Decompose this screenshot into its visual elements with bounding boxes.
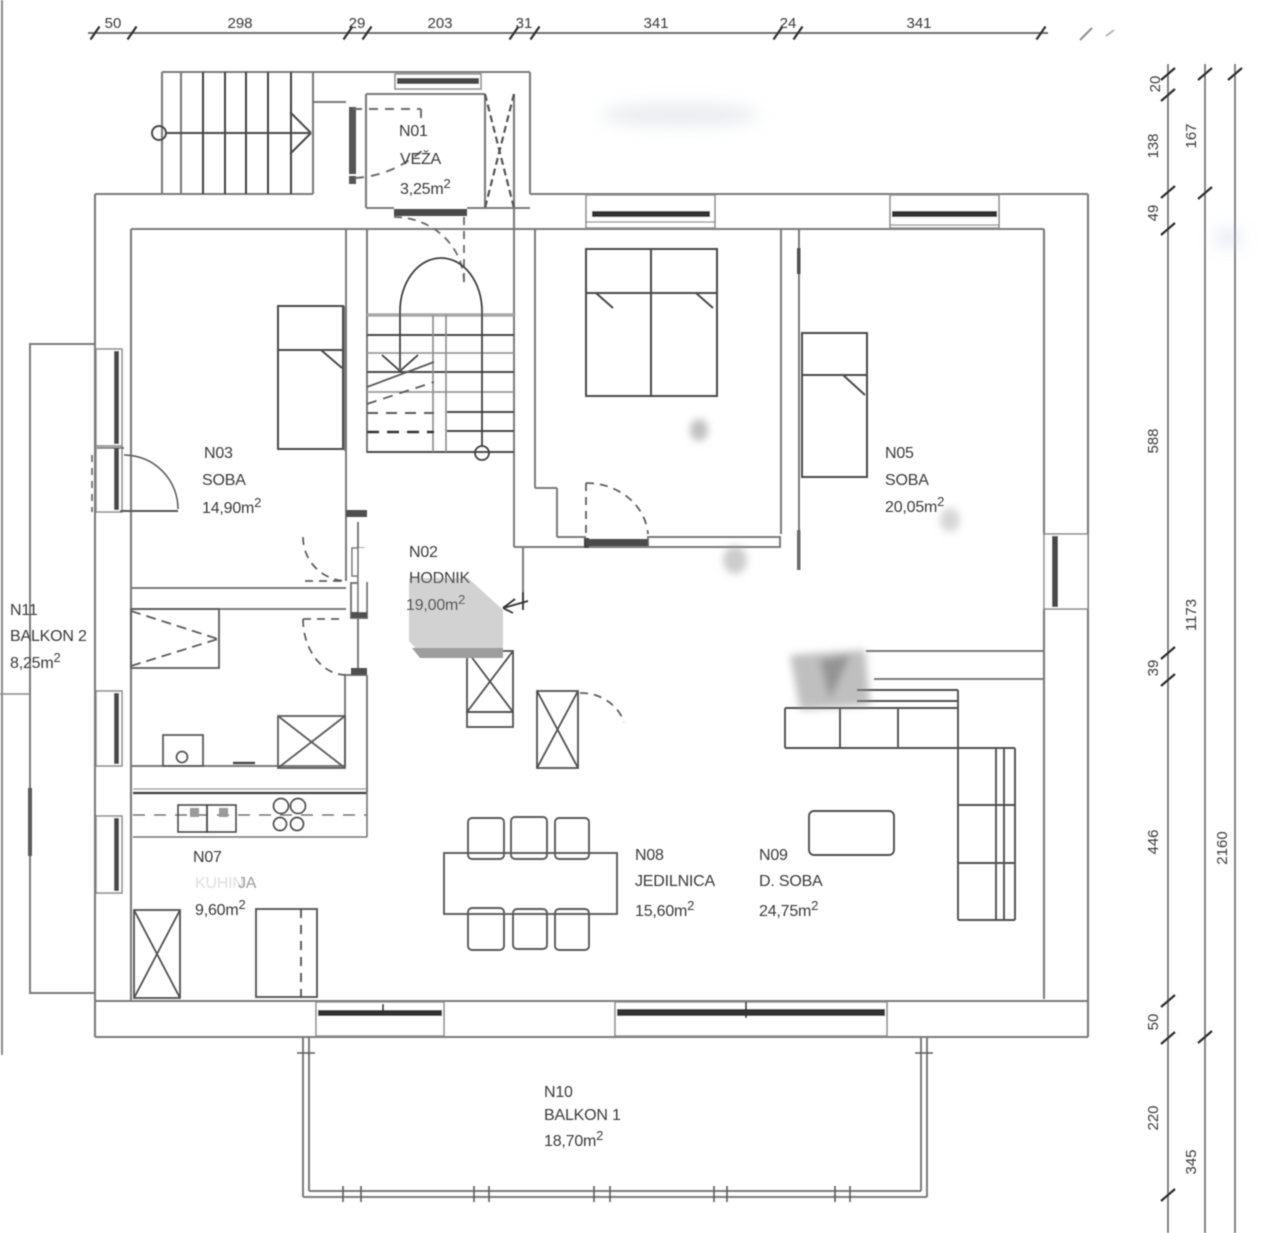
svg-text:14,90m2: 14,90m2 xyxy=(202,495,261,517)
svg-text:29: 29 xyxy=(349,15,366,32)
svg-text:49: 49 xyxy=(1145,205,1162,222)
svg-text:20: 20 xyxy=(1147,76,1164,93)
svg-text:1173: 1173 xyxy=(1183,599,1200,631)
svg-text:N05: N05 xyxy=(885,445,914,462)
svg-text:N11: N11 xyxy=(10,602,38,619)
svg-text:JA: JA xyxy=(238,875,257,892)
svg-text:N02: N02 xyxy=(409,544,438,561)
svg-text:D. SOBA: D. SOBA xyxy=(759,873,823,890)
svg-text:15,60m2: 15,60m2 xyxy=(635,898,694,920)
svg-text:N08: N08 xyxy=(635,847,664,864)
svg-text:24,75m2: 24,75m2 xyxy=(759,898,818,920)
svg-text:JEDILNICA: JEDILNICA xyxy=(635,873,716,890)
svg-text:50: 50 xyxy=(1145,1014,1162,1031)
svg-text:N01: N01 xyxy=(399,123,428,140)
svg-text:24: 24 xyxy=(780,15,797,32)
svg-text:50: 50 xyxy=(105,15,122,32)
svg-text:3,25m2: 3,25m2 xyxy=(400,176,451,198)
svg-text:341: 341 xyxy=(643,15,668,32)
svg-text:KUHIN: KUHIN xyxy=(195,875,244,892)
svg-text:220: 220 xyxy=(1145,1105,1162,1130)
svg-text:2160: 2160 xyxy=(1214,831,1231,864)
svg-text:BALKON 2: BALKON 2 xyxy=(10,628,87,645)
svg-text:18,70m2: 18,70m2 xyxy=(544,1128,603,1150)
svg-text:SOBA: SOBA xyxy=(885,472,929,489)
svg-text:341: 341 xyxy=(906,15,931,32)
svg-text:8,25m2: 8,25m2 xyxy=(10,650,61,672)
svg-text:203: 203 xyxy=(427,15,452,32)
svg-text:N09: N09 xyxy=(759,847,788,864)
svg-text:N07: N07 xyxy=(193,849,222,866)
svg-text:39: 39 xyxy=(1145,660,1162,677)
svg-text:138: 138 xyxy=(1145,133,1162,158)
svg-text:BALKON 1: BALKON 1 xyxy=(544,1107,621,1124)
svg-text:588: 588 xyxy=(1145,428,1162,453)
svg-text:20,05m2: 20,05m2 xyxy=(885,494,944,516)
svg-text:31: 31 xyxy=(516,15,533,32)
svg-text:446: 446 xyxy=(1145,829,1162,854)
svg-text:167: 167 xyxy=(1183,123,1200,148)
svg-text:345: 345 xyxy=(1183,1149,1200,1174)
svg-text:N03: N03 xyxy=(204,445,233,462)
svg-text:HODNIK: HODNIK xyxy=(409,570,471,587)
svg-text:N10: N10 xyxy=(544,1084,573,1101)
svg-text:VEŽA: VEŽA xyxy=(400,149,442,168)
svg-text:SOBA: SOBA xyxy=(202,472,246,489)
svg-text:298: 298 xyxy=(227,15,252,32)
svg-text:9,60m2: 9,60m2 xyxy=(195,897,246,919)
